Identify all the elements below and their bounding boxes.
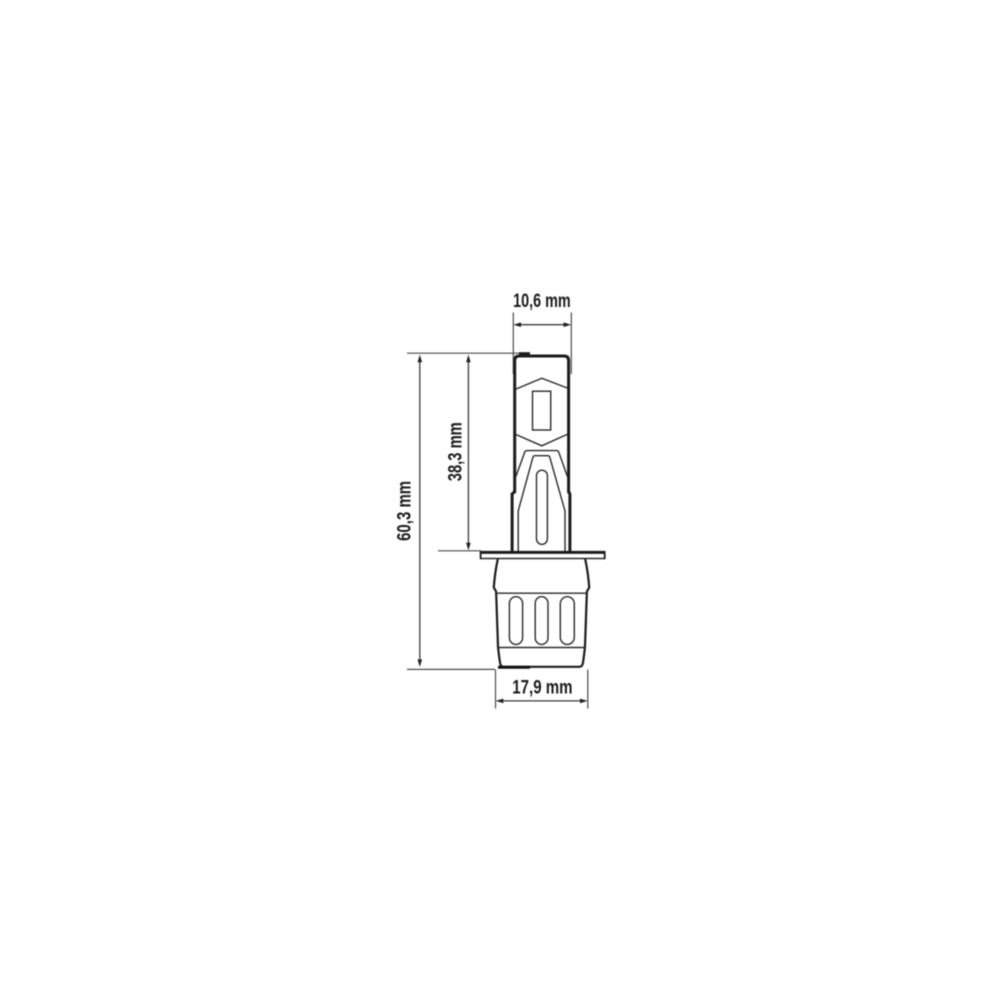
svg-text:10,6 mm: 10,6 mm bbox=[513, 291, 571, 312]
svg-text:38,3 mm: 38,3 mm bbox=[446, 422, 467, 481]
svg-text:60,3 mm: 60,3 mm bbox=[395, 481, 416, 541]
svg-text:17,9 mm: 17,9 mm bbox=[512, 677, 572, 698]
